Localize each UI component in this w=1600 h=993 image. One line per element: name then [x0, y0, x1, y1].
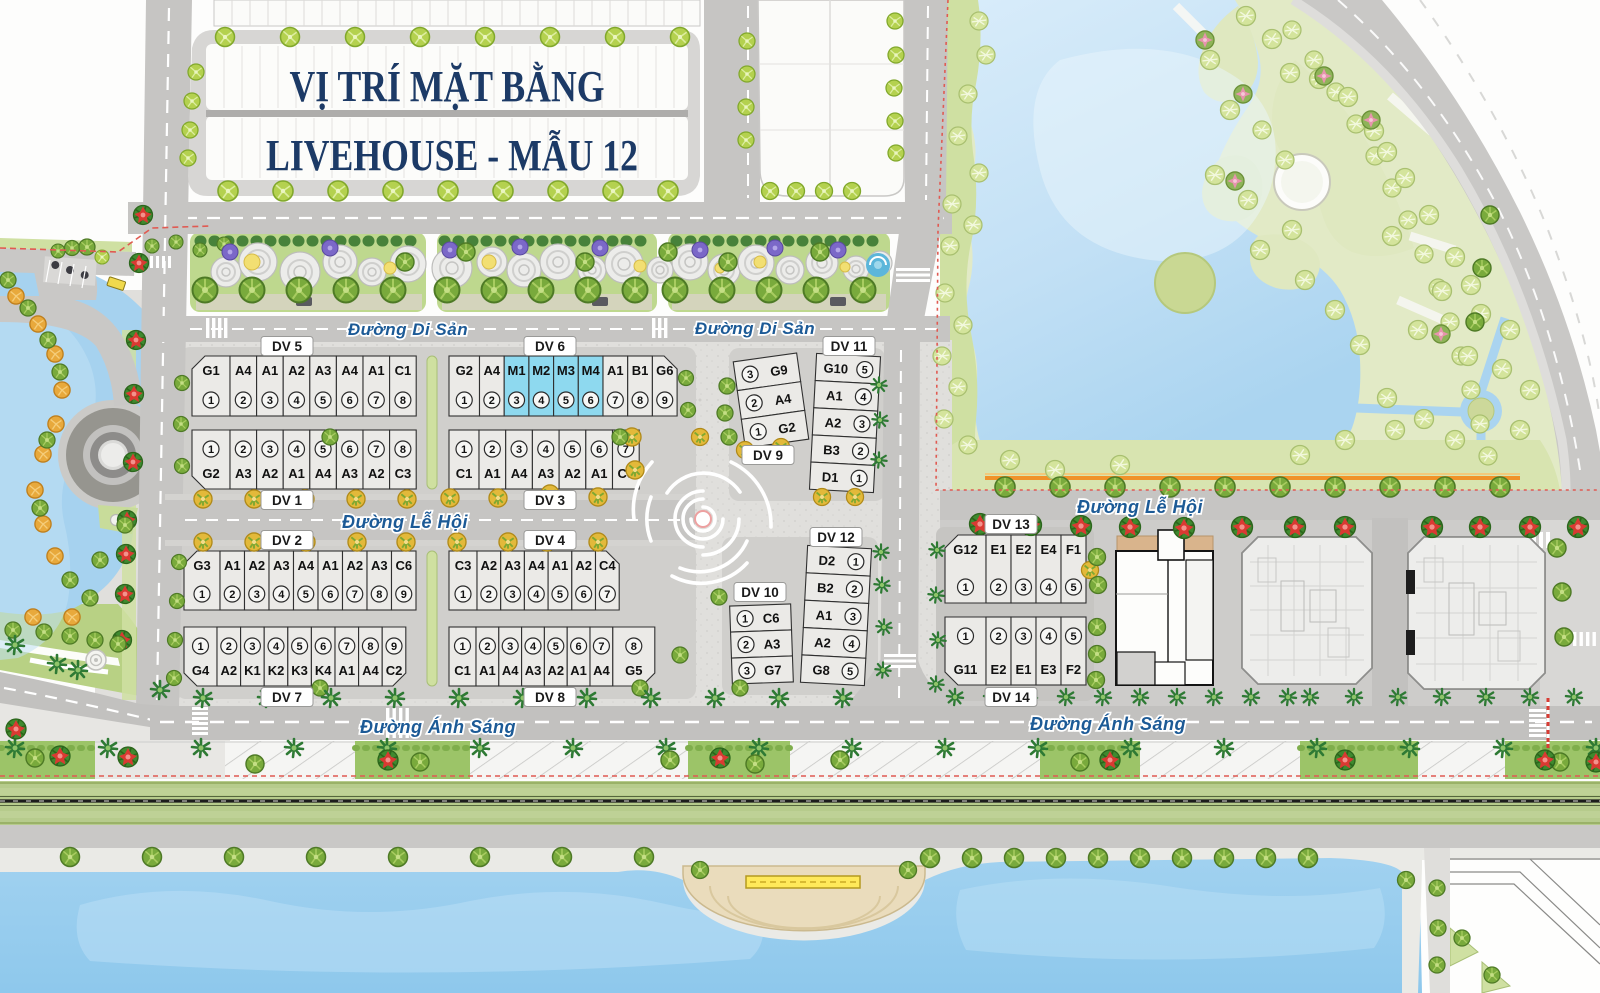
- svg-text:6: 6: [576, 641, 582, 653]
- svg-text:4: 4: [278, 589, 285, 601]
- svg-text:A2: A2: [288, 363, 305, 378]
- svg-text:8: 8: [631, 641, 637, 653]
- svg-text:DV 1: DV 1: [272, 493, 303, 508]
- svg-text:3: 3: [1020, 631, 1026, 643]
- svg-text:1: 1: [208, 395, 214, 407]
- svg-text:3: 3: [507, 641, 513, 653]
- svg-text:G5: G5: [625, 663, 642, 678]
- svg-text:K3: K3: [291, 663, 308, 678]
- svg-text:A4: A4: [297, 558, 314, 573]
- svg-text:2: 2: [995, 582, 1001, 594]
- svg-text:3: 3: [850, 611, 857, 623]
- svg-text:A4: A4: [315, 466, 332, 481]
- svg-text:C6: C6: [395, 558, 412, 573]
- svg-text:A4: A4: [511, 466, 528, 481]
- svg-text:DV 9: DV 9: [753, 448, 783, 463]
- svg-text:E1: E1: [1016, 662, 1032, 677]
- svg-text:2: 2: [486, 589, 492, 601]
- svg-text:Đường Lễ Hội: Đường Lễ Hội: [342, 511, 468, 532]
- svg-text:1: 1: [852, 557, 859, 569]
- svg-text:A1: A1: [591, 466, 608, 481]
- svg-text:4: 4: [538, 395, 545, 407]
- svg-text:A2: A2: [547, 663, 564, 678]
- svg-text:1: 1: [461, 395, 467, 407]
- svg-text:Đường Di Sản: Đường Di Sản: [695, 319, 815, 338]
- svg-text:VỊ TRÍ MẶT BẰNG: VỊ TRÍ MẶT BẰNG: [290, 61, 605, 111]
- svg-text:Đường Ánh Sáng: Đường Ánh Sáng: [1030, 713, 1186, 734]
- svg-text:5: 5: [847, 666, 854, 678]
- svg-text:9: 9: [662, 395, 668, 407]
- svg-text:A2: A2: [824, 415, 841, 431]
- svg-text:6: 6: [596, 444, 602, 456]
- svg-text:6: 6: [347, 444, 353, 456]
- svg-text:A2: A2: [814, 635, 831, 651]
- svg-text:5: 5: [297, 641, 303, 653]
- svg-text:G8: G8: [812, 662, 830, 678]
- svg-text:C6: C6: [763, 610, 780, 626]
- svg-text:4: 4: [1045, 631, 1052, 643]
- svg-text:M1: M1: [508, 363, 526, 378]
- svg-text:DV 12: DV 12: [817, 530, 855, 545]
- svg-text:F2: F2: [1066, 662, 1081, 677]
- svg-text:4: 4: [530, 641, 537, 653]
- svg-text:G10: G10: [823, 360, 848, 376]
- svg-text:3: 3: [744, 665, 751, 677]
- svg-text:2: 2: [857, 446, 864, 458]
- svg-text:4: 4: [273, 641, 280, 653]
- svg-text:1: 1: [962, 582, 968, 594]
- svg-text:A4: A4: [235, 363, 252, 378]
- svg-text:A2: A2: [248, 558, 265, 573]
- svg-text:2: 2: [229, 589, 235, 601]
- svg-text:A1: A1: [288, 466, 305, 481]
- svg-text:5: 5: [557, 589, 563, 601]
- svg-text:7: 7: [373, 444, 379, 456]
- svg-text:DV 14: DV 14: [992, 690, 1030, 705]
- svg-text:C1: C1: [456, 466, 473, 481]
- svg-text:1: 1: [460, 589, 466, 601]
- svg-text:DV 10: DV 10: [741, 585, 779, 600]
- svg-text:DV 7: DV 7: [272, 690, 302, 705]
- svg-text:3: 3: [249, 641, 255, 653]
- svg-text:A3: A3: [273, 558, 290, 573]
- svg-text:M2: M2: [532, 363, 550, 378]
- svg-text:G11: G11: [954, 662, 978, 677]
- svg-text:A3: A3: [537, 466, 554, 481]
- svg-text:A2: A2: [262, 466, 279, 481]
- svg-text:1: 1: [208, 444, 214, 456]
- svg-text:5: 5: [320, 444, 326, 456]
- svg-text:G2: G2: [456, 363, 473, 378]
- svg-text:8: 8: [400, 395, 406, 407]
- svg-text:G3: G3: [193, 558, 210, 573]
- svg-text:2: 2: [240, 395, 246, 407]
- svg-text:3: 3: [254, 589, 260, 601]
- svg-text:F1: F1: [1066, 542, 1081, 557]
- svg-text:8: 8: [400, 444, 406, 456]
- svg-text:C2: C2: [386, 663, 403, 678]
- svg-text:A2: A2: [564, 466, 581, 481]
- svg-text:E1: E1: [991, 542, 1007, 557]
- svg-text:Đường Ánh Sáng: Đường Ánh Sáng: [360, 716, 516, 737]
- svg-text:3: 3: [267, 395, 273, 407]
- svg-text:DV 8: DV 8: [535, 690, 566, 705]
- svg-text:A1: A1: [368, 363, 385, 378]
- svg-text:9: 9: [391, 641, 397, 653]
- svg-text:2: 2: [489, 395, 495, 407]
- svg-text:B2: B2: [817, 580, 834, 596]
- svg-text:A1: A1: [607, 363, 624, 378]
- svg-text:C1: C1: [454, 663, 471, 678]
- svg-text:2: 2: [743, 639, 750, 651]
- svg-text:2: 2: [240, 444, 246, 456]
- svg-text:A3: A3: [315, 363, 332, 378]
- svg-text:6: 6: [327, 589, 333, 601]
- svg-text:DV 13: DV 13: [992, 517, 1030, 532]
- svg-text:A3: A3: [525, 663, 542, 678]
- svg-text:2: 2: [995, 631, 1001, 643]
- svg-text:3: 3: [509, 589, 515, 601]
- svg-text:K1: K1: [244, 663, 261, 678]
- svg-text:Đường Di Sản: Đường Di Sản: [348, 320, 468, 339]
- svg-text:5: 5: [303, 589, 309, 601]
- svg-text:G2: G2: [777, 419, 796, 436]
- svg-text:2: 2: [484, 641, 490, 653]
- svg-text:LIVEHOUSE - MẪU 12: LIVEHOUSE - MẪU 12: [266, 130, 638, 180]
- svg-text:G6: G6: [656, 363, 673, 378]
- svg-text:E3: E3: [1041, 662, 1057, 677]
- svg-text:5: 5: [569, 444, 575, 456]
- svg-text:A1: A1: [262, 363, 279, 378]
- svg-text:Đường Lễ Hội: Đường Lễ Hội: [1077, 496, 1203, 517]
- svg-text:1: 1: [962, 631, 968, 643]
- svg-text:G2: G2: [202, 466, 219, 481]
- svg-text:6: 6: [347, 395, 353, 407]
- svg-text:7: 7: [352, 589, 358, 601]
- svg-text:G7: G7: [764, 662, 782, 678]
- svg-text:E2: E2: [991, 662, 1007, 677]
- svg-text:A3: A3: [235, 466, 252, 481]
- svg-text:3: 3: [513, 395, 519, 407]
- svg-text:6: 6: [588, 395, 594, 407]
- svg-text:2: 2: [851, 584, 858, 596]
- svg-text:A3: A3: [371, 558, 388, 573]
- svg-text:G9: G9: [769, 362, 788, 379]
- svg-text:3: 3: [516, 444, 522, 456]
- svg-text:5: 5: [1070, 631, 1076, 643]
- svg-text:A1: A1: [338, 663, 355, 678]
- svg-text:5: 5: [553, 641, 559, 653]
- svg-text:A4: A4: [341, 363, 358, 378]
- svg-text:5: 5: [320, 395, 326, 407]
- svg-text:D2: D2: [818, 553, 835, 569]
- svg-text:7: 7: [344, 641, 350, 653]
- svg-text:1: 1: [459, 641, 465, 653]
- svg-text:E2: E2: [1016, 542, 1032, 557]
- svg-text:7: 7: [373, 395, 379, 407]
- svg-text:A2: A2: [346, 558, 363, 573]
- svg-text:7: 7: [612, 395, 618, 407]
- svg-text:5: 5: [861, 364, 868, 376]
- svg-text:C3: C3: [395, 466, 412, 481]
- svg-text:C4: C4: [599, 558, 616, 573]
- svg-text:DV 3: DV 3: [535, 493, 566, 508]
- svg-text:K4: K4: [315, 663, 332, 678]
- svg-text:G1: G1: [202, 363, 219, 378]
- svg-text:A1: A1: [322, 558, 339, 573]
- svg-text:A3: A3: [341, 466, 358, 481]
- svg-text:4: 4: [1045, 582, 1052, 594]
- svg-text:A4: A4: [593, 663, 610, 678]
- svg-text:A1: A1: [570, 663, 587, 678]
- svg-text:A1: A1: [815, 607, 832, 623]
- svg-text:A3: A3: [763, 636, 780, 652]
- svg-text:6: 6: [320, 641, 326, 653]
- svg-text:A1: A1: [224, 558, 241, 573]
- svg-text:3: 3: [267, 444, 273, 456]
- svg-text:A3: A3: [504, 558, 521, 573]
- svg-text:9: 9: [401, 589, 407, 601]
- svg-text:A1: A1: [826, 388, 843, 404]
- svg-text:1: 1: [742, 613, 749, 625]
- svg-text:A1: A1: [479, 663, 496, 678]
- svg-text:C1: C1: [395, 363, 412, 378]
- svg-text:A2: A2: [481, 558, 498, 573]
- svg-text:1: 1: [856, 473, 863, 485]
- svg-text:3: 3: [1020, 582, 1026, 594]
- svg-text:4: 4: [293, 444, 300, 456]
- svg-text:B3: B3: [823, 442, 840, 458]
- svg-text:A2: A2: [220, 663, 237, 678]
- svg-text:DV 5: DV 5: [272, 339, 303, 354]
- svg-text:7: 7: [604, 589, 610, 601]
- svg-text:B1: B1: [632, 363, 649, 378]
- svg-text:M3: M3: [557, 363, 575, 378]
- svg-text:5: 5: [1070, 582, 1076, 594]
- svg-text:5: 5: [563, 395, 569, 407]
- svg-text:DV 11: DV 11: [831, 339, 868, 354]
- svg-text:E4: E4: [1041, 542, 1058, 557]
- svg-text:4: 4: [293, 395, 300, 407]
- svg-text:8: 8: [637, 395, 643, 407]
- svg-text:4: 4: [543, 444, 550, 456]
- svg-text:2: 2: [489, 444, 495, 456]
- svg-text:3: 3: [859, 419, 866, 431]
- svg-text:6: 6: [581, 589, 587, 601]
- svg-text:A1: A1: [552, 558, 569, 573]
- svg-text:A4: A4: [774, 391, 793, 408]
- svg-text:M4: M4: [582, 363, 601, 378]
- svg-text:8: 8: [367, 641, 373, 653]
- svg-text:G12: G12: [953, 542, 978, 557]
- svg-text:1: 1: [199, 589, 205, 601]
- svg-text:2: 2: [226, 641, 232, 653]
- svg-text:A4: A4: [528, 558, 545, 573]
- svg-text:K2: K2: [268, 663, 285, 678]
- svg-text:8: 8: [376, 589, 382, 601]
- svg-text:A2: A2: [368, 466, 385, 481]
- svg-text:D1: D1: [821, 469, 838, 485]
- svg-text:DV 6: DV 6: [535, 339, 566, 354]
- svg-text:1: 1: [461, 444, 467, 456]
- svg-text:A4: A4: [484, 363, 501, 378]
- svg-text:DV 4: DV 4: [535, 533, 566, 548]
- svg-text:DV 2: DV 2: [272, 533, 302, 548]
- svg-text:7: 7: [598, 641, 604, 653]
- svg-text:A4: A4: [502, 663, 519, 678]
- svg-text:G4: G4: [192, 663, 210, 678]
- svg-text:4: 4: [533, 589, 540, 601]
- svg-text:A2: A2: [575, 558, 592, 573]
- svg-text:A4: A4: [362, 663, 379, 678]
- svg-text:1: 1: [197, 641, 203, 653]
- svg-text:A1: A1: [484, 466, 501, 481]
- svg-text:C3: C3: [455, 558, 472, 573]
